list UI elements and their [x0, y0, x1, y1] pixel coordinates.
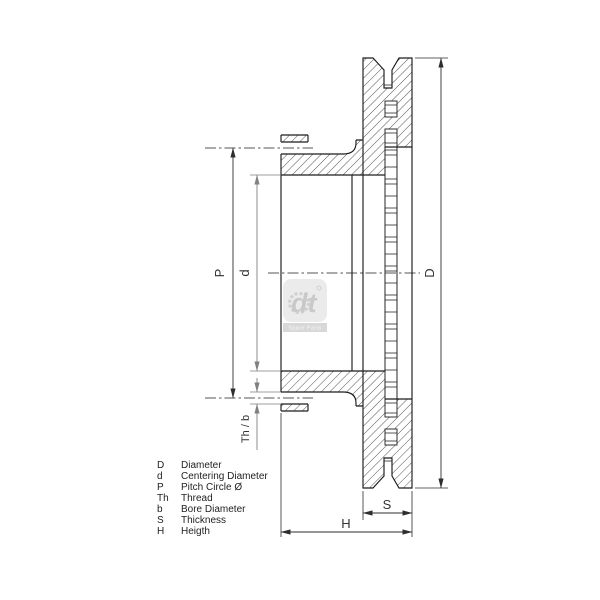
legend-row: P Pitch Circle Ø	[157, 482, 242, 493]
legend-row: D Diameter	[157, 460, 222, 471]
legend-desc: Diameter	[181, 460, 222, 471]
legend-desc: Bore Diameter	[181, 504, 246, 515]
legend: D Diameter d Centering Diameter P Pitch …	[157, 460, 268, 537]
dt-spare-parts-watermark: dt Spare Parts	[283, 279, 327, 332]
brake-disc-technical-drawing: D P d Th / b S H dt Spare Parts D	[0, 0, 600, 600]
legend-key: D	[157, 460, 164, 471]
top-bolt-boss-section	[281, 135, 308, 142]
bottom-bolt-boss-section	[281, 404, 308, 411]
hat-top-web-section	[281, 140, 363, 175]
legend-key: P	[157, 482, 164, 493]
legend-row: d Centering Diameter	[157, 471, 268, 482]
legend-key: d	[157, 471, 163, 482]
legend-desc: Pitch Circle Ø	[181, 482, 242, 493]
hat-bottom-web-section	[281, 371, 363, 406]
dimension-P: P	[212, 148, 233, 398]
dim-label-P: P	[212, 269, 227, 278]
vent-slot	[385, 129, 397, 147]
legend-key: b	[157, 504, 163, 515]
legend-desc: Thread	[181, 493, 213, 504]
legend-desc: Heigth	[181, 526, 210, 537]
vent-slot	[385, 101, 397, 117]
technical-drawing-page: D P d Th / b S H dt Spare Parts D	[0, 0, 600, 600]
legend-row: b Bore Diameter	[157, 504, 246, 515]
dim-label-thb: Th / b	[240, 415, 252, 443]
dim-label-H: H	[341, 516, 350, 531]
vent-slot	[385, 399, 397, 417]
legend-row: H Heigth	[157, 526, 210, 537]
watermark-brand: dt	[291, 288, 317, 318]
legend-key: H	[157, 526, 164, 537]
vent-slot	[385, 429, 397, 445]
legend-desc: Thickness	[181, 515, 226, 526]
watermark-subtitle: Spare Parts	[288, 326, 321, 332]
legend-key: Th	[157, 493, 169, 504]
dimension-S: S	[363, 491, 412, 537]
dim-label-d: d	[237, 269, 252, 276]
legend-row: S Thickness	[157, 515, 226, 526]
vent-vane-edges	[385, 150, 397, 387]
dim-label-S: S	[383, 497, 392, 512]
dim-label-D: D	[422, 268, 437, 277]
legend-key: S	[157, 515, 164, 526]
dimension-thread-bore: Th / b	[240, 378, 281, 450]
legend-desc: Centering Diameter	[181, 471, 268, 482]
legend-row: Th Thread	[157, 493, 213, 504]
